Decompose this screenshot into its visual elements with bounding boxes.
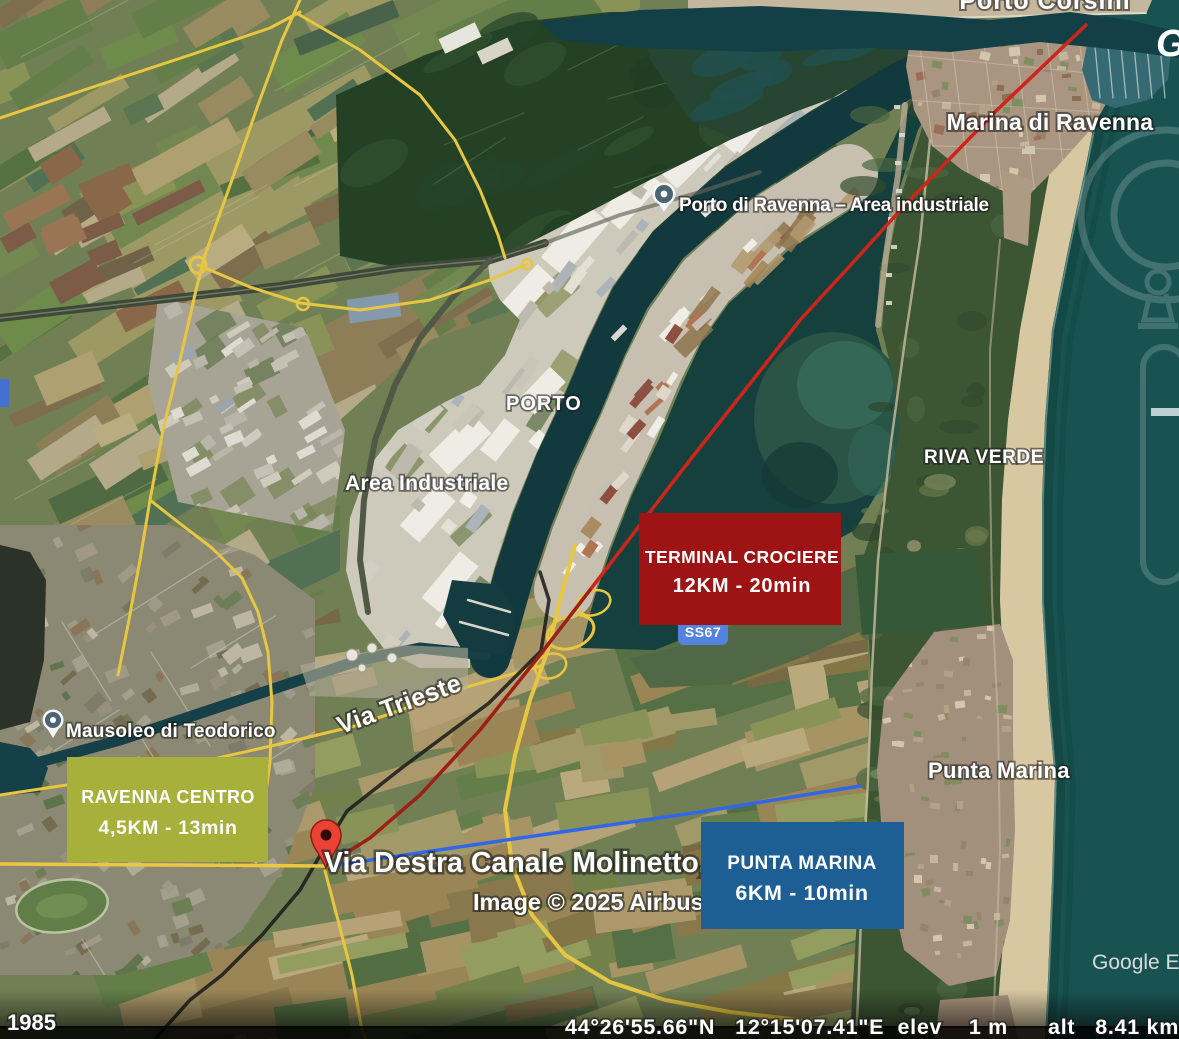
svg-text:TERMINAL CROCIERE: TERMINAL CROCIERE [645,547,839,567]
svg-text:1985: 1985 [7,1010,56,1035]
svg-text:Area Industriale: Area Industriale [345,472,509,495]
svg-text:Image © 2025 Airbus: Image © 2025 Airbus [473,889,704,915]
svg-text:Porto Corsini: Porto Corsini [959,0,1130,15]
svg-text:RIVA VERDE: RIVA VERDE [924,447,1044,468]
svg-text:44°26'55.66"N 12°15'07.41"E: 44°26'55.66"N 12°15'07.41"E elev 1 m alt… [565,1015,1179,1039]
svg-text:Via Destra Canale Molinetto,: Via Destra Canale Molinetto, [324,847,707,879]
svg-text:Porto di Ravenna – Area indust: Porto di Ravenna – Area industriale [679,195,989,216]
svg-text:Punta Marina: Punta Marina [928,758,1070,783]
svg-text:Google E: Google E [1092,951,1179,974]
svg-text:RAVENNA CENTRO: RAVENNA CENTRO [81,787,255,807]
svg-text:Marina di Ravenna: Marina di Ravenna [947,109,1154,135]
svg-text:4,5KM - 13min: 4,5KM - 13min [99,817,238,839]
svg-text:12KM - 20min: 12KM - 20min [673,575,812,597]
svg-text:PUNTA MARINA: PUNTA MARINA [727,853,876,874]
svg-text:PORTO: PORTO [506,393,582,415]
svg-text:Mausoleo di Teodorico: Mausoleo di Teodorico [66,721,276,742]
svg-text:G: G [1156,23,1179,65]
svg-text:6KM - 10min: 6KM - 10min [735,881,868,905]
